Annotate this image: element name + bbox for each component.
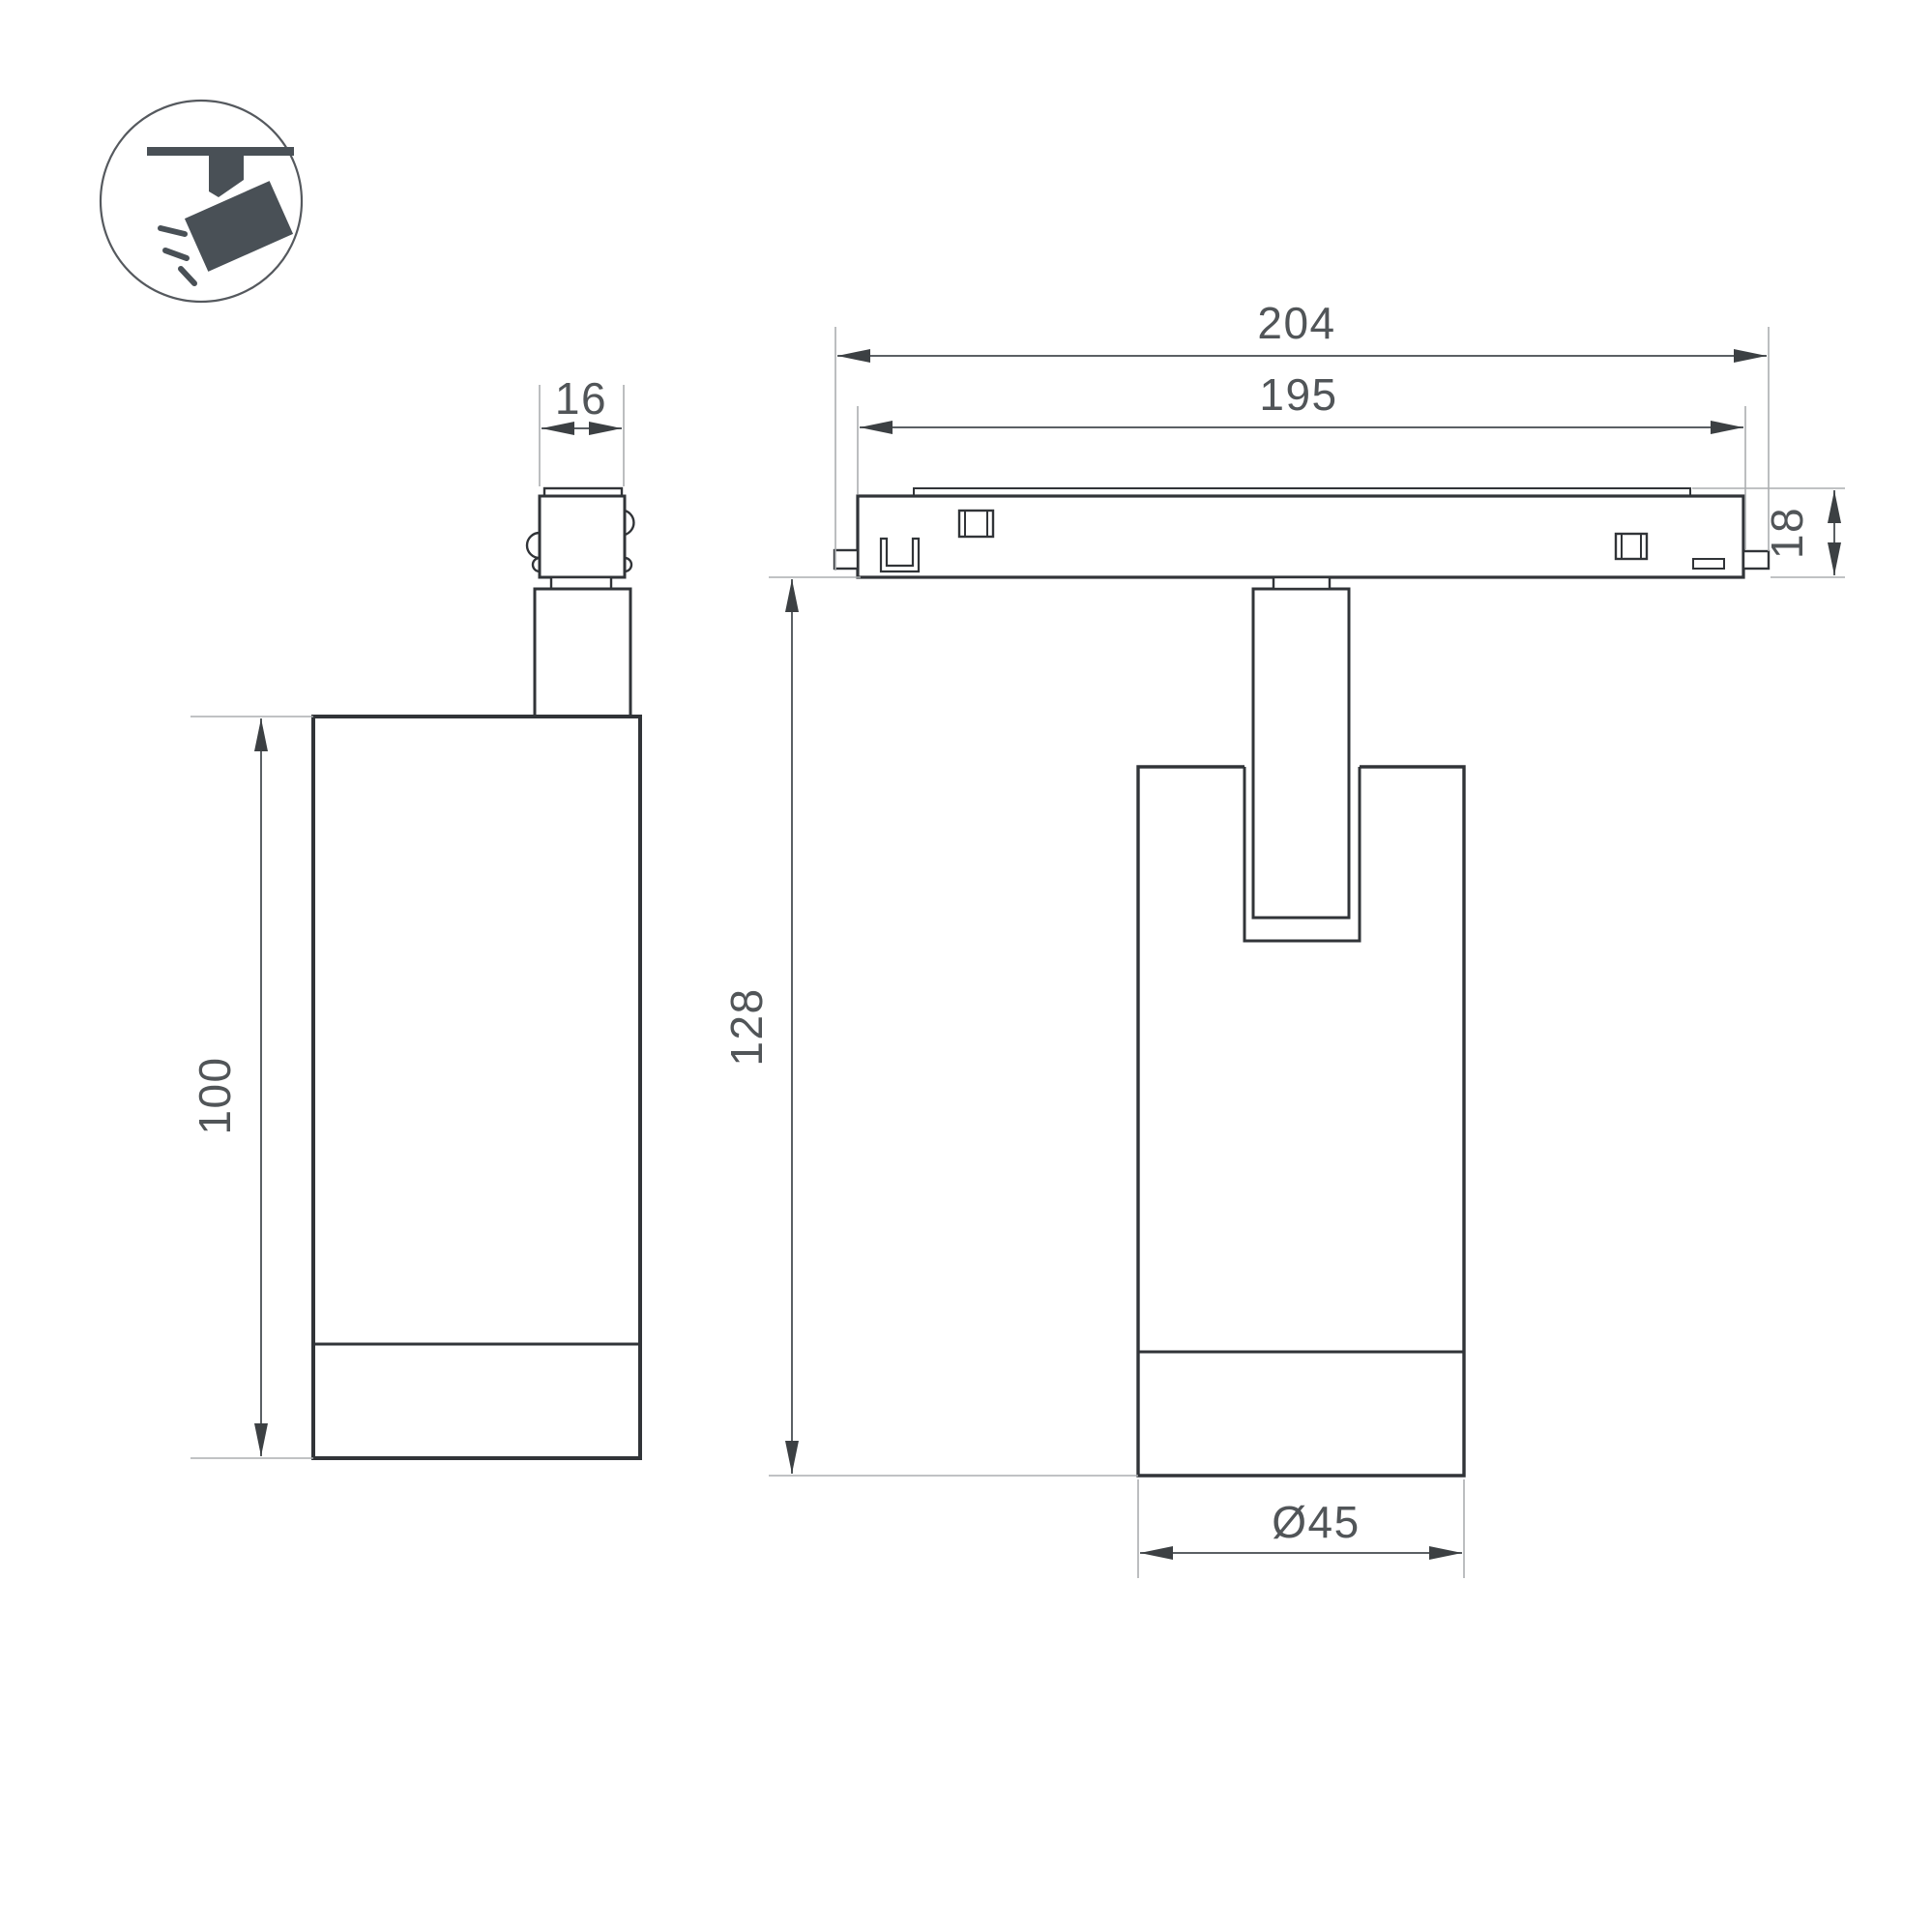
- track-spotlight-icon: [101, 101, 302, 302]
- technical-drawing: 16 100: [0, 0, 1932, 1932]
- front-view: [1138, 577, 1464, 1476]
- track-driver-box: [834, 488, 1769, 577]
- dim-body-height: 100: [190, 717, 313, 1458]
- dim-body-diameter: Ø45: [1138, 1479, 1464, 1578]
- side-track-adapter: [540, 496, 625, 577]
- dim-adapter-width: 16: [540, 373, 624, 486]
- dim-label-100: 100: [190, 1056, 240, 1134]
- icon-ceiling-bar: [147, 147, 294, 156]
- side-lamp-body: [313, 717, 640, 1458]
- front-stem: [1253, 589, 1349, 918]
- side-neck: [551, 577, 611, 589]
- dim-label-195: 195: [1259, 369, 1337, 420]
- side-stem: [535, 589, 630, 717]
- dim-label-128: 128: [721, 987, 772, 1066]
- dim-label-204: 204: [1257, 298, 1335, 348]
- side-view: [313, 488, 640, 1458]
- dim-label-16: 16: [555, 373, 607, 424]
- drawing-canvas: 16 100: [0, 0, 1932, 1932]
- track-left-tab: [834, 550, 858, 569]
- dim-label-d45: Ø45: [1272, 1497, 1360, 1547]
- dim-label-18: 18: [1762, 507, 1812, 559]
- track-connector-slot: [1693, 559, 1724, 569]
- front-connector-nub: [1273, 577, 1330, 589]
- dim-overall-height: 128: [721, 577, 1138, 1476]
